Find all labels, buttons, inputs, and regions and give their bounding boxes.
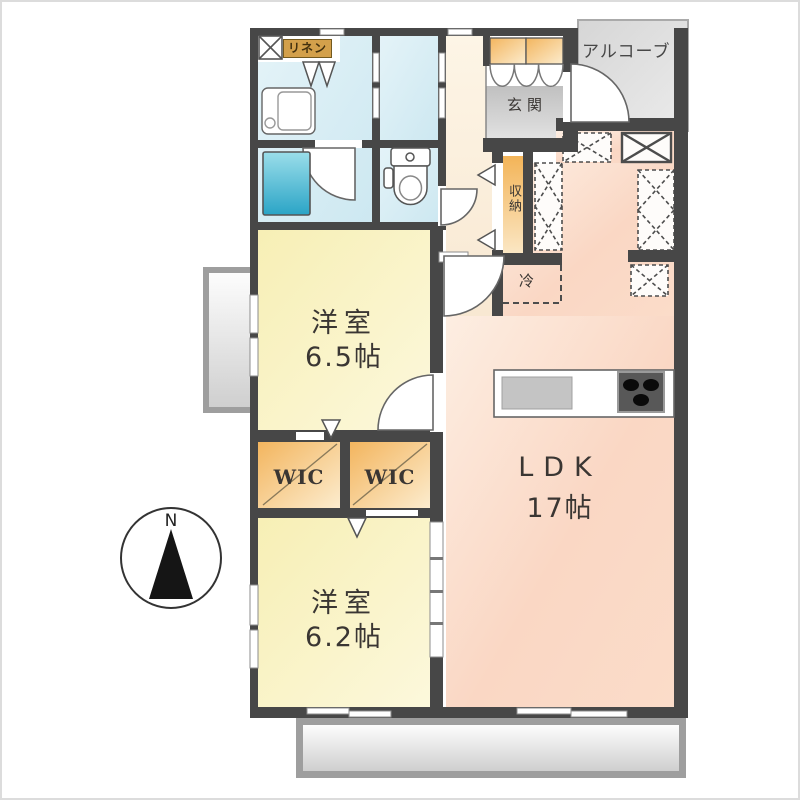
bathtub-icon (263, 152, 310, 215)
fridge-label: 冷 (519, 270, 534, 291)
storage-label: 収納 (503, 184, 523, 258)
side-balcony (209, 273, 251, 407)
alcove-label: アルコーブ (582, 37, 678, 62)
ldk-size: 17帖 (460, 486, 660, 525)
north-label: N (157, 511, 185, 531)
wic-left-label: WIC (258, 465, 340, 489)
floorplan-canvas: アルコーブ リネン 玄関 収納 冷 洋室 6.5帖 WIC WIC 洋室 6.2… (0, 0, 800, 800)
linen-label: リネン (283, 39, 332, 58)
sliding-door (430, 522, 443, 657)
kitchen-sink-icon (502, 377, 572, 409)
linen-shelf-icon (259, 36, 282, 59)
stove-icon (618, 372, 664, 412)
entrance-label: 玄関 (494, 94, 560, 115)
floorplan-drawing (0, 0, 800, 800)
wic-right-label: WIC (350, 465, 430, 489)
main-balcony (303, 725, 679, 771)
bedroom1-size: 6.5帖 (258, 335, 430, 374)
kitchen-counter (494, 370, 674, 417)
pipe-space-box (622, 133, 671, 162)
vanity-sink-icon (262, 88, 315, 134)
utility-room-region (380, 36, 438, 140)
bedroom2-size: 6.2帖 (258, 615, 430, 654)
ldk-name: LDK (460, 452, 660, 483)
